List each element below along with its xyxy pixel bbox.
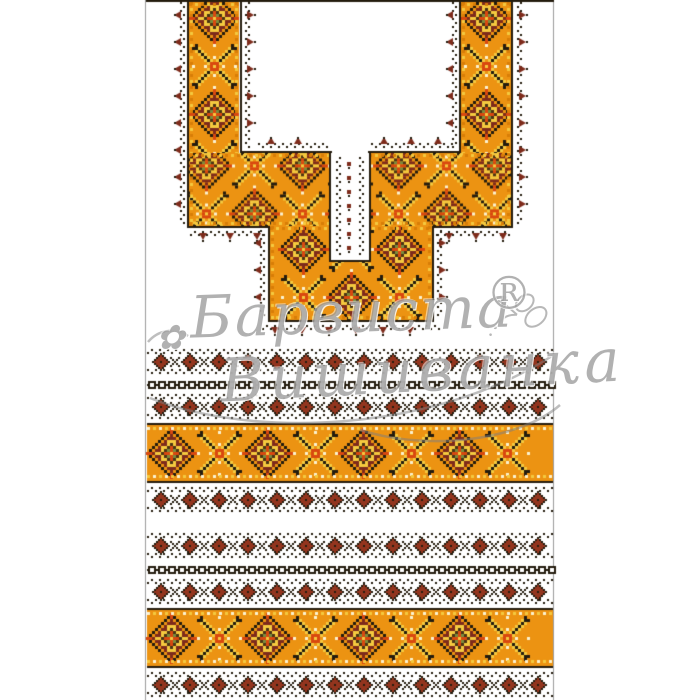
embroidery-pattern-canvas	[0, 0, 700, 700]
embroidery-pattern-page: ✿ Барвиста ® Вишиванка	[0, 0, 700, 700]
